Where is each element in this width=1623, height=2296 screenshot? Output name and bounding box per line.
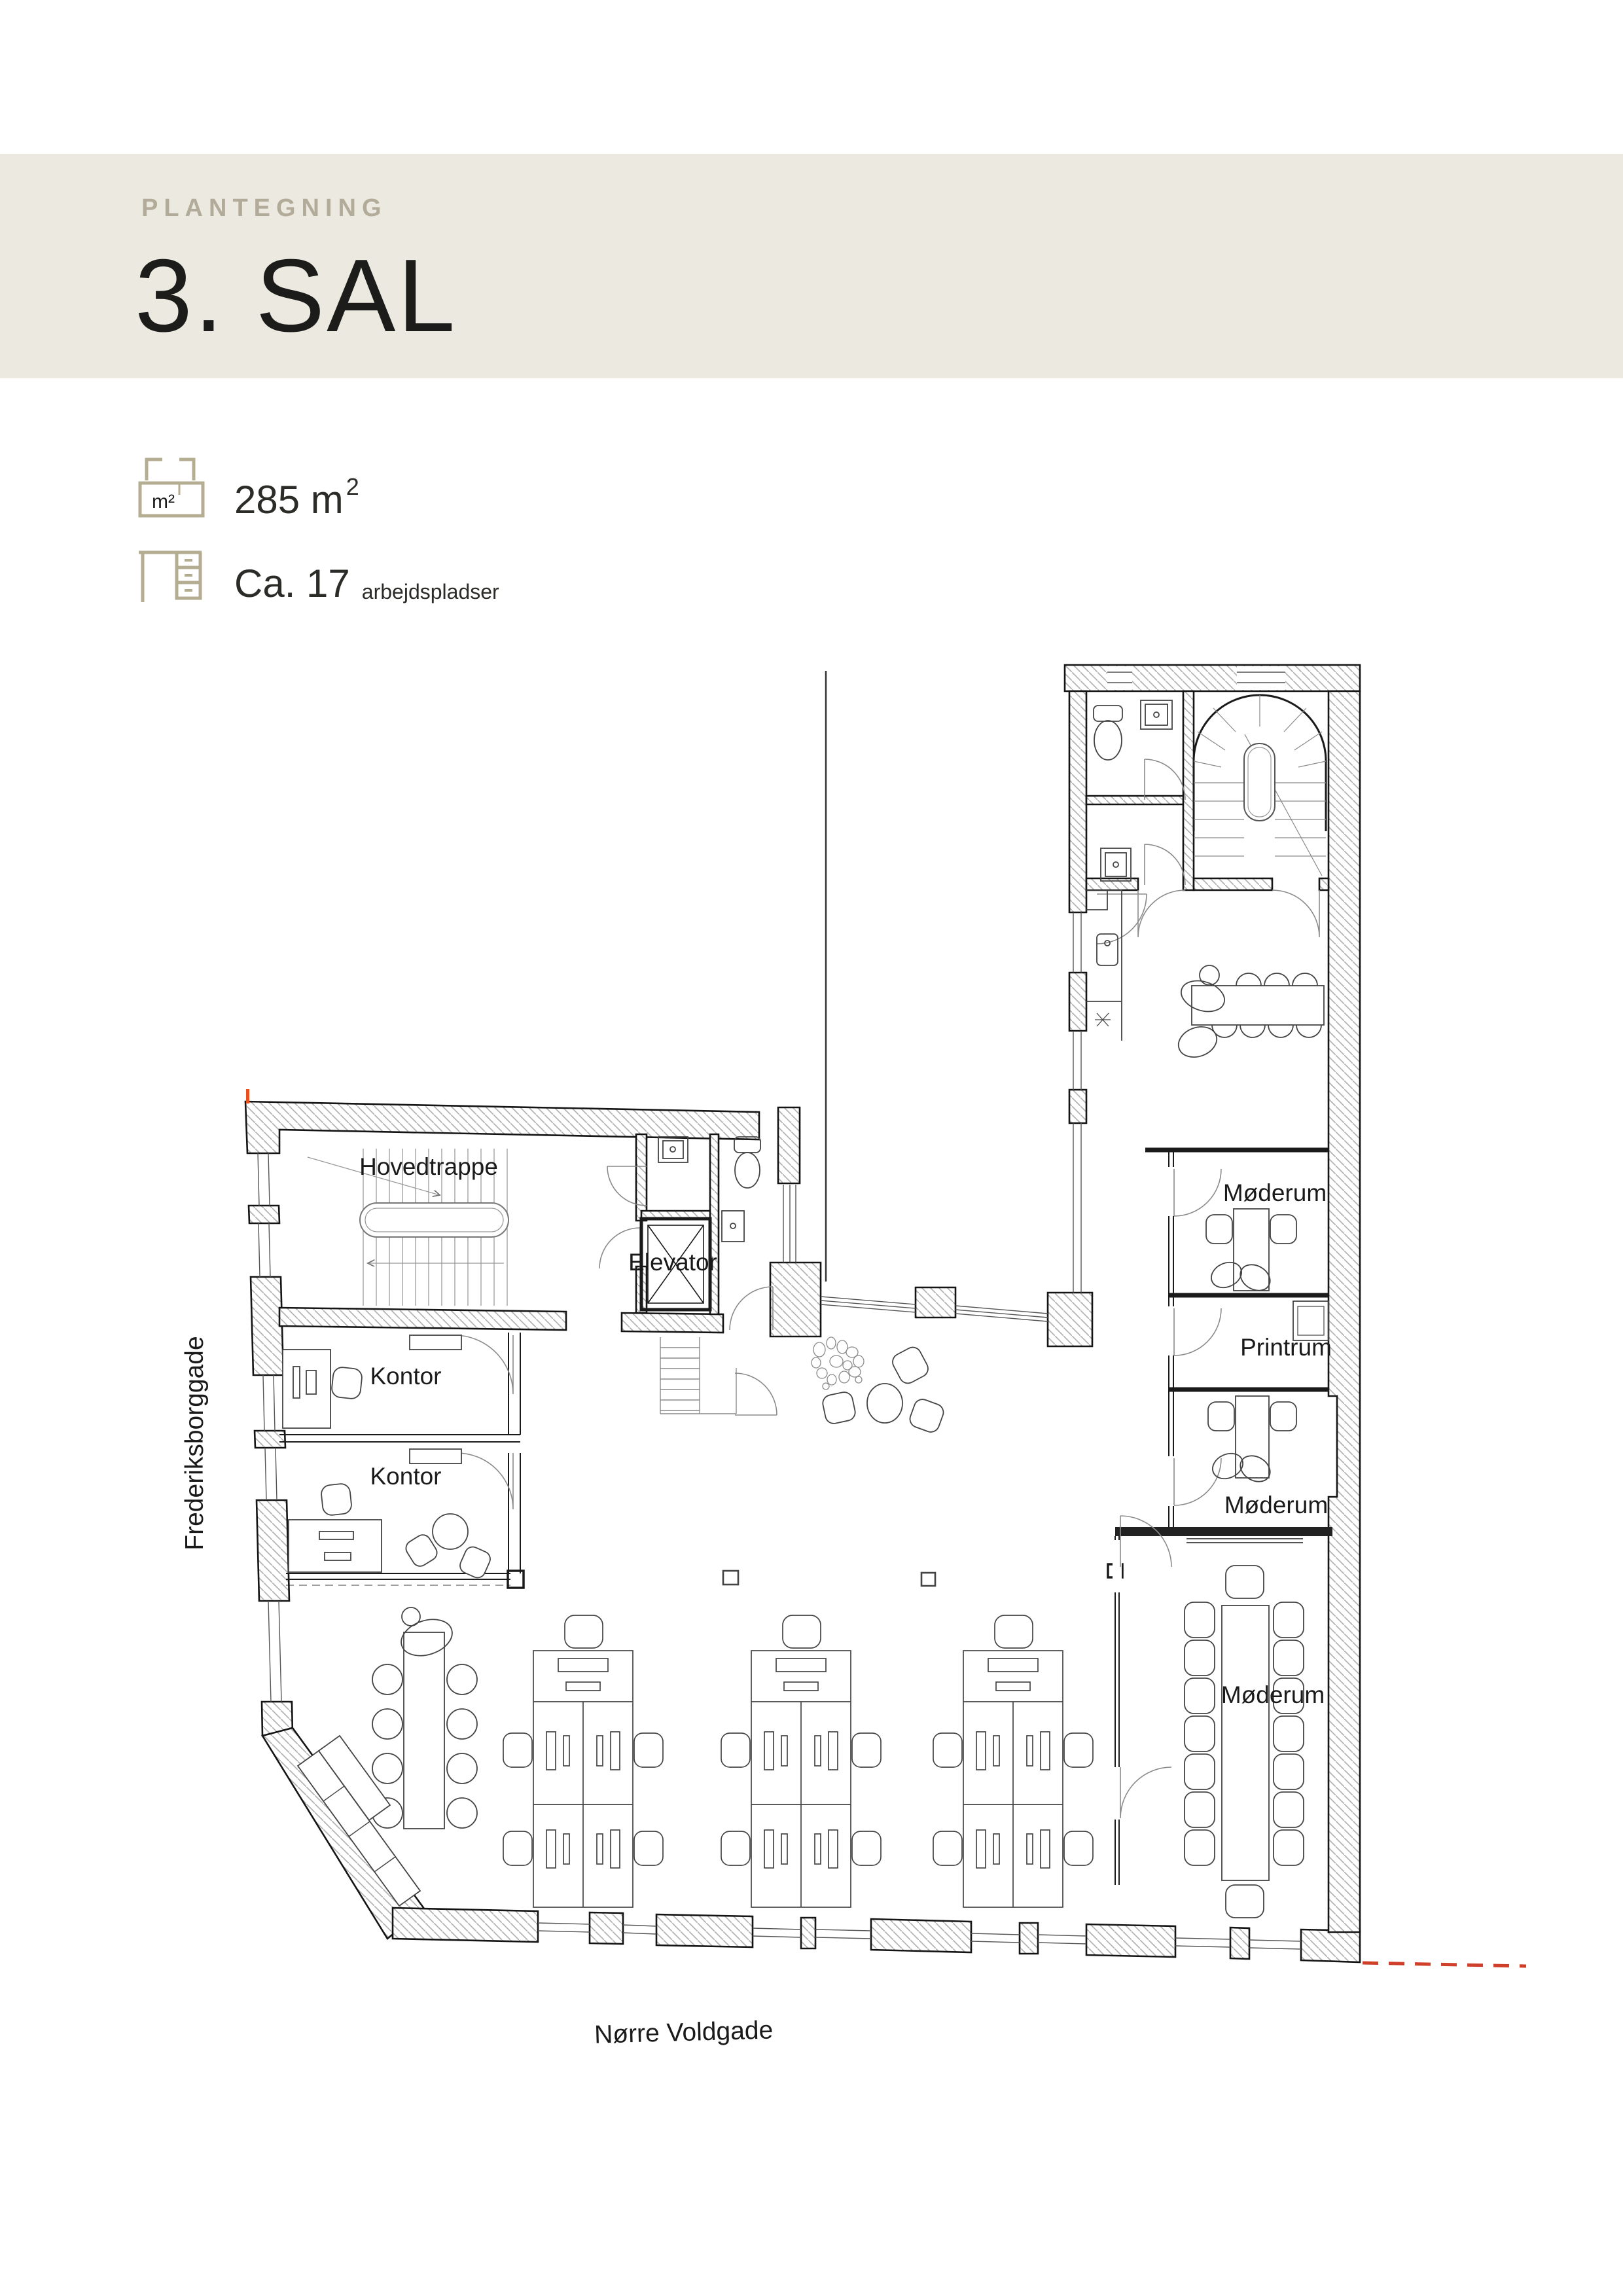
sink-icon: [1101, 848, 1131, 881]
sink-icon: [1141, 700, 1172, 729]
desk-cluster-1: [503, 1615, 663, 1907]
floor-plan: Hovedtrappe Elevator Kontor Kontor Møder…: [0, 0, 1623, 2296]
street-label-noerre-voldgade: Nørre Voldgade: [594, 2016, 774, 2049]
room-label-printrum: Printrum: [1240, 1334, 1332, 1361]
coffee-table: [821, 1344, 946, 1435]
room-label-elevator: Elevator: [628, 1249, 717, 1276]
meeting-table-small: [1208, 1396, 1296, 1487]
sink-icon: [722, 1211, 744, 1242]
lounge-table: [372, 1607, 477, 1829]
secondary-stair: [660, 1337, 736, 1414]
site-boundary-dash: [1363, 1963, 1526, 1966]
brochure-page: PLANTEGNING 3. SAL m² 285 m2 Ca. 17: [0, 0, 1623, 2296]
room-label-kontor-2: Kontor: [370, 1463, 441, 1490]
desk-clusters: [503, 1615, 1093, 1907]
desk-cluster-2: [721, 1615, 881, 1907]
survey-tick: [246, 1089, 249, 1103]
room-label-hovedtrappe: Hovedtrappe: [359, 1153, 498, 1180]
plant-icon: [811, 1337, 864, 1390]
toilet-icon: [734, 1137, 760, 1188]
floor-box: [921, 1573, 935, 1586]
street-label-frederiksborggade: Frederiksborggade: [181, 1336, 209, 1550]
meeting-table-small: [1206, 1209, 1296, 1296]
conference-table: [1185, 1566, 1304, 1918]
desk-cluster-3: [933, 1615, 1093, 1907]
room-label-kontor-1: Kontor: [370, 1363, 441, 1390]
kitchen-counter: [1086, 890, 1122, 1041]
room-labels: Hovedtrappe Elevator Kontor Kontor Møder…: [181, 1153, 1332, 2049]
spiral-stair: [1194, 695, 1326, 876]
room-label-moederum-2: Møderum: [1224, 1492, 1328, 1518]
lunch-table: [1174, 965, 1324, 1062]
room-label-moederum-3: Møderum: [1221, 1681, 1325, 1708]
sink-icon: [658, 1137, 688, 1162]
toilet-icon: [1094, 706, 1122, 760]
floor-box: [723, 1571, 738, 1585]
room-label-moederum-1: Møderum: [1223, 1179, 1327, 1206]
